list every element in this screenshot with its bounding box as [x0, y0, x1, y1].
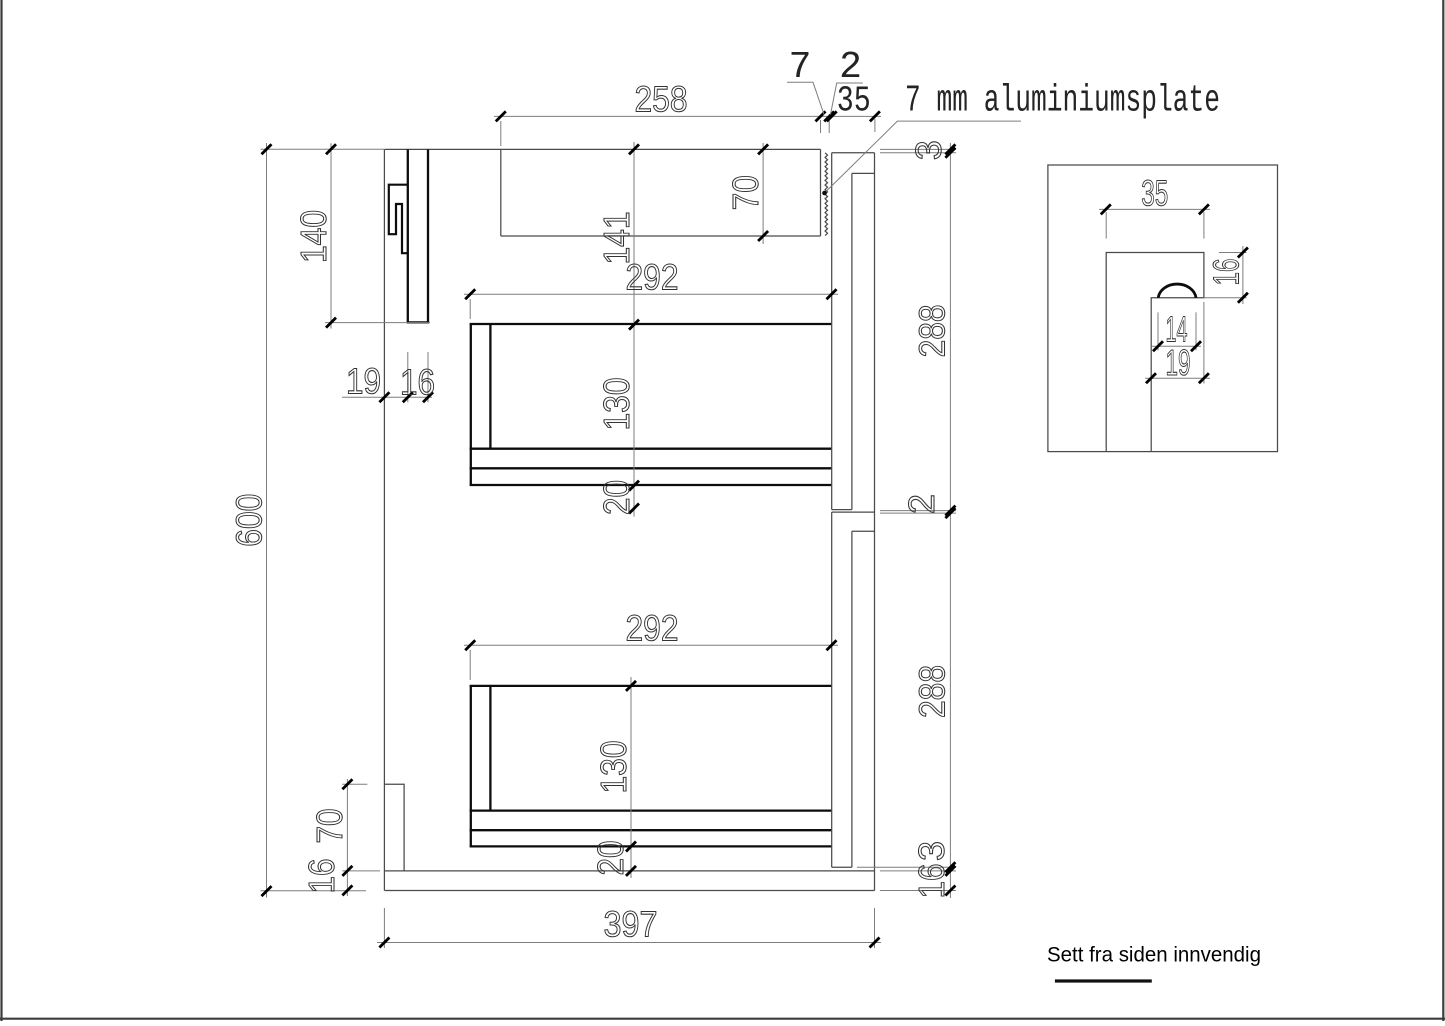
svg-text:130: 130 [596, 378, 637, 431]
svg-text:70: 70 [309, 809, 350, 844]
svg-text:19: 19 [346, 361, 381, 402]
svg-text:Sett fra siden innvendig: Sett fra siden innvendig [1047, 943, 1261, 967]
svg-text:3: 3 [908, 140, 949, 160]
svg-text:16: 16 [1205, 259, 1246, 286]
svg-text:288: 288 [912, 304, 953, 357]
svg-text:292: 292 [626, 608, 679, 649]
svg-text:35: 35 [1141, 173, 1168, 214]
svg-text:3: 3 [911, 841, 952, 861]
svg-text:16: 16 [911, 864, 952, 899]
svg-text:16: 16 [301, 859, 342, 894]
svg-text:397: 397 [604, 904, 658, 945]
svg-text:292: 292 [626, 257, 679, 298]
svg-text:7 mm aluminiumsplate: 7 mm aluminiumsplate [905, 80, 1220, 123]
svg-text:288: 288 [912, 665, 953, 718]
svg-text:20: 20 [590, 841, 631, 876]
svg-text:600: 600 [229, 494, 270, 547]
svg-text:258: 258 [635, 79, 688, 120]
svg-text:16: 16 [400, 362, 435, 403]
svg-text:19: 19 [1166, 342, 1191, 383]
svg-text:35: 35 [837, 81, 871, 122]
svg-text:2: 2 [901, 494, 942, 514]
svg-text:130: 130 [593, 741, 634, 794]
svg-text:70: 70 [725, 175, 766, 210]
svg-text:20: 20 [596, 480, 637, 515]
svg-text:140: 140 [293, 210, 334, 263]
